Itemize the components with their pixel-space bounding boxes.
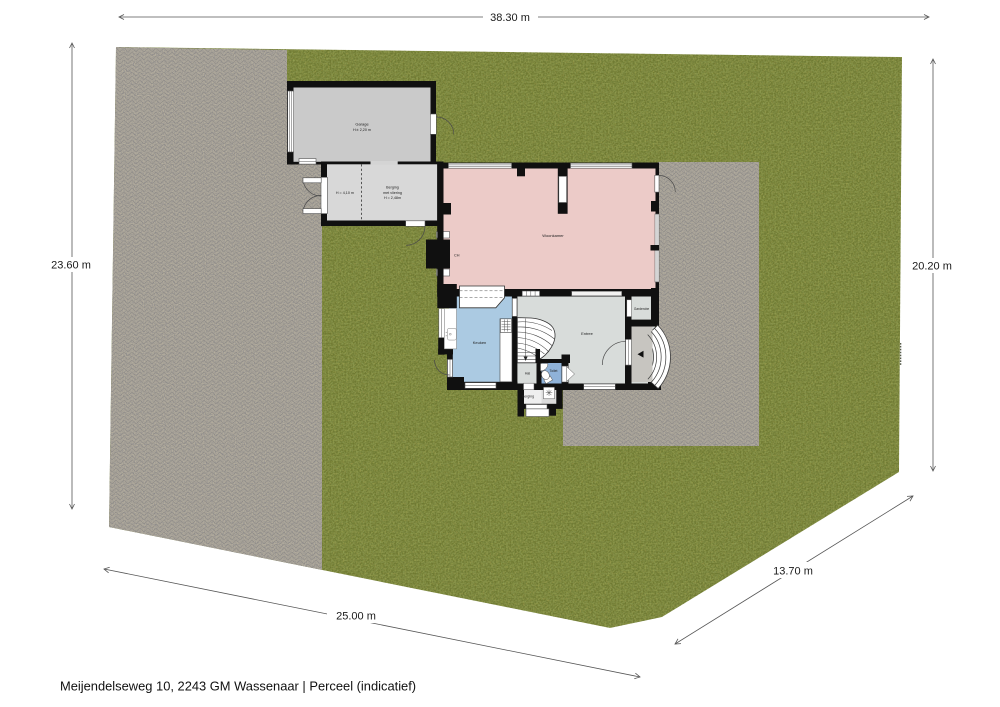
svg-text:met vliering: met vliering [383, 191, 402, 195]
svg-text:H:± 2,20 m: H:± 2,20 m [353, 128, 371, 132]
svg-text:H = 4,10 m: H = 4,10 m [336, 191, 354, 195]
svg-text:Garage: Garage [355, 121, 369, 126]
svg-text:Keuken: Keuken [473, 340, 487, 345]
svg-text:CH: CH [454, 253, 460, 257]
svg-text:23.60 m: 23.60 m [51, 260, 91, 272]
svg-text:H = 2,48m: H = 2,48m [384, 196, 401, 200]
svg-text:Entree: Entree [581, 331, 594, 336]
svg-text:25.00 m: 25.00 m [336, 611, 376, 623]
svg-text:Hal: Hal [525, 371, 530, 375]
svg-text:38.30 m: 38.30 m [490, 12, 530, 24]
svg-text:13.70 m: 13.70 m [773, 566, 813, 578]
svg-text:Berging: Berging [386, 186, 399, 190]
svg-text:✳: ✳ [545, 388, 553, 398]
svg-text:Toilet: Toilet [550, 369, 558, 373]
svg-text:Woonkamer: Woonkamer [542, 233, 564, 238]
svg-text:Garderobe: Garderobe [634, 307, 649, 311]
svg-text:Berging: Berging [522, 394, 534, 398]
svg-text:Meijendelseweg 10, 2243 GM Was: Meijendelseweg 10, 2243 GM Wassenaar | P… [60, 679, 416, 694]
svg-text:20.20 m: 20.20 m [912, 261, 952, 273]
